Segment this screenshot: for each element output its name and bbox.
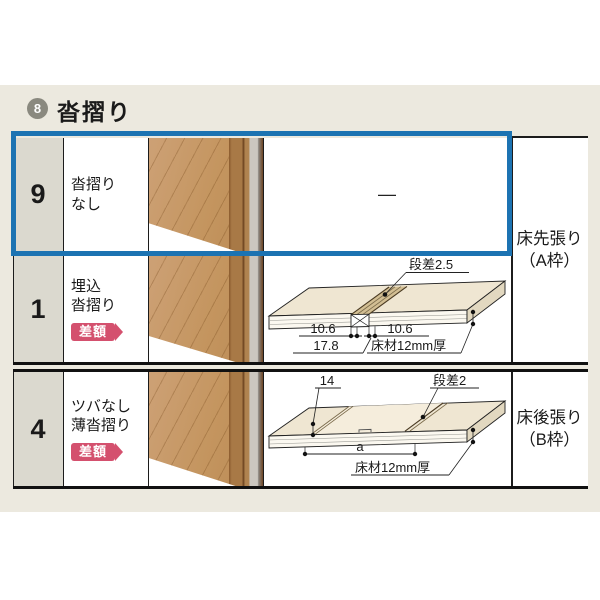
install-label-b-line2: （B枠） — [519, 429, 580, 451]
thin-threshold-diagram: 14 段差2 a 床材12mm厚 — [263, 372, 511, 486]
page-title: 沓摺り — [57, 93, 132, 127]
selection-highlight — [11, 131, 512, 256]
price-diff-badge: 差額 — [71, 443, 115, 462]
install-label-a-line1: 床先張り — [517, 228, 583, 250]
group-divider — [13, 362, 588, 372]
catalog-page: 8 沓摺り 床先張り （A枠） 床後張り （B枠） 9 沓摺り なし — 1 埋… — [0, 0, 600, 600]
door-frame-image — [229, 372, 263, 486]
price-diff-badge-label: 差額 — [79, 324, 107, 339]
row-4-name-line1: ツバなし — [71, 397, 148, 417]
embedded-threshold-diagram: 段差2.5 10.6 10.6 17.8 床材12mm厚 — [263, 256, 511, 362]
dim-total-label: 17.8 — [313, 338, 338, 353]
row-1-name-line1: 埋込 — [71, 277, 148, 297]
row-1-number: 1 — [13, 256, 63, 362]
install-label-a: 床先張り （A枠） — [511, 138, 588, 362]
dim-right-label: 10.6 — [387, 321, 412, 336]
dim-left-label: 10.6 — [310, 321, 335, 336]
row-4-name-line2: 薄沓摺り — [71, 416, 148, 436]
table-bottom-border — [13, 486, 588, 489]
price-diff-badge-label: 差額 — [79, 444, 107, 459]
section-number-badge: 8 — [27, 98, 48, 119]
floor-thickness-label: 床材12mm厚 — [355, 460, 430, 475]
row-1-diagram: 段差2.5 10.6 10.6 17.8 床材12mm厚 — [263, 256, 511, 362]
floor-thickness-label: 床材12mm厚 — [371, 338, 446, 353]
install-label-b: 床後張り （B枠） — [511, 372, 588, 486]
table-top-border — [509, 136, 588, 138]
dim-span-label: a — [356, 439, 364, 454]
dim-step-label: 段差2.5 — [409, 257, 453, 272]
install-label-b-line1: 床後張り — [517, 407, 583, 429]
row-4-name: ツバなし 薄沓摺り 差額 — [63, 372, 148, 486]
row-1-photo — [148, 256, 263, 362]
price-diff-badge: 差額 — [71, 323, 115, 342]
row-4-diagram: 14 段差2 a 床材12mm厚 — [263, 372, 511, 486]
dim-step-label: 段差2 — [433, 373, 466, 388]
row-4-photo — [148, 372, 263, 486]
row-1-name: 埋込 沓摺り 差額 — [63, 256, 148, 362]
row-1-name-line2: 沓摺り — [71, 296, 148, 316]
dim-width-label: 14 — [320, 373, 334, 388]
door-frame-image — [229, 256, 263, 362]
install-label-a-line2: （A枠） — [519, 250, 580, 272]
row-4-number: 4 — [13, 372, 63, 486]
